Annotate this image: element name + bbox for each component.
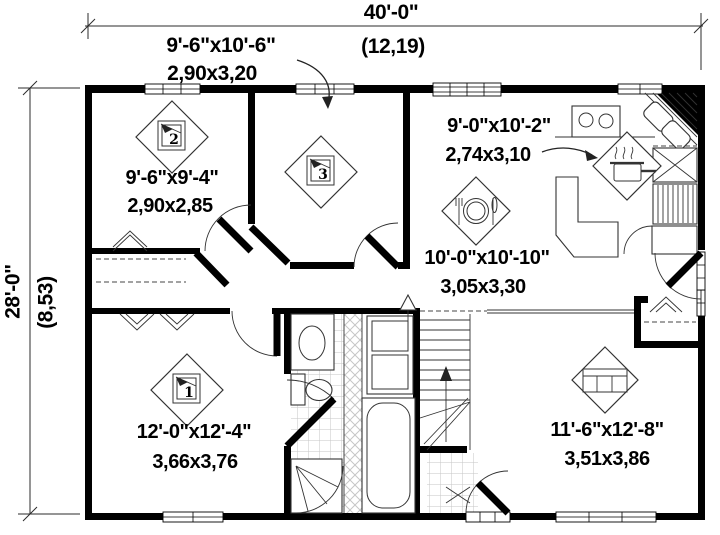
bifold-door-icon xyxy=(160,314,194,330)
kitchen-size-m: 2,74x3,10 xyxy=(388,144,588,166)
overall-width-m: (12,19) xyxy=(293,35,493,58)
linen-closet xyxy=(367,316,413,394)
window xyxy=(618,84,662,94)
dining-marker xyxy=(442,177,510,245)
arrowhead-icon xyxy=(322,96,333,109)
bedroom3-size-ft: 9'-6"x10'-6" xyxy=(121,34,321,57)
floor-plan: 2 3 1 xyxy=(0,0,720,535)
front-door-threshold xyxy=(466,512,510,522)
bifold-door-icon xyxy=(120,314,154,330)
window xyxy=(145,84,200,94)
window xyxy=(697,290,705,316)
entry-tile-floor xyxy=(427,453,478,513)
window xyxy=(556,512,656,522)
bedroom2-size-m: 2,90x2,85 xyxy=(70,195,270,217)
kitchen-marker xyxy=(593,132,661,200)
door-arc xyxy=(232,311,277,356)
vanity-sink xyxy=(291,314,334,370)
kitchen-island xyxy=(556,177,618,257)
room-number: 1 xyxy=(184,385,194,401)
window xyxy=(296,84,354,94)
kitchen-size-ft: 9'-0"x10'-2" xyxy=(399,115,599,137)
bathtub xyxy=(362,398,415,513)
lattice-tile-strip xyxy=(344,314,362,513)
room-number: 2 xyxy=(169,132,179,148)
half-wall-railing xyxy=(487,310,634,313)
counter-hatch-band xyxy=(653,184,697,224)
bedroom1-size-m: 3,66x3,76 xyxy=(85,451,305,473)
refrigerator xyxy=(624,226,697,254)
stairs-up-arrow-icon xyxy=(440,366,452,381)
room-number: 3 xyxy=(318,167,328,183)
bedroom3-size-m: 2,90x3,20 xyxy=(112,62,312,85)
bedroom3-marker: 3 xyxy=(285,136,357,208)
angled-hall-walls xyxy=(196,227,288,285)
bedroom1-marker: 1 xyxy=(151,354,223,426)
kitchen-garden-window xyxy=(433,83,501,96)
dining-size-m: 3,05x3,30 xyxy=(373,276,593,298)
bedroom2-size-ft: 9'-6"x9'-4" xyxy=(72,167,272,189)
stairs xyxy=(420,311,487,450)
dining-size-ft: 10'-0"x10'-10" xyxy=(377,247,597,269)
back-door-arc xyxy=(655,253,701,299)
living-marker xyxy=(572,347,638,413)
bedroom1-size-ft: 12'-0"x12'-4" xyxy=(84,421,304,443)
bedroom2-marker: 2 xyxy=(136,101,208,173)
living-size-m: 3,51x3,86 xyxy=(497,448,717,470)
bifold-door-icon xyxy=(650,297,682,312)
overall-depth-ft: 28'-0" xyxy=(1,242,24,342)
living-size-ft: 11'-6"x12'-8" xyxy=(497,419,717,441)
overall-depth-m: (8,53) xyxy=(34,253,57,353)
window xyxy=(163,512,223,522)
closet-shelf xyxy=(96,259,186,282)
overall-width-ft: 40'-0" xyxy=(291,1,491,24)
